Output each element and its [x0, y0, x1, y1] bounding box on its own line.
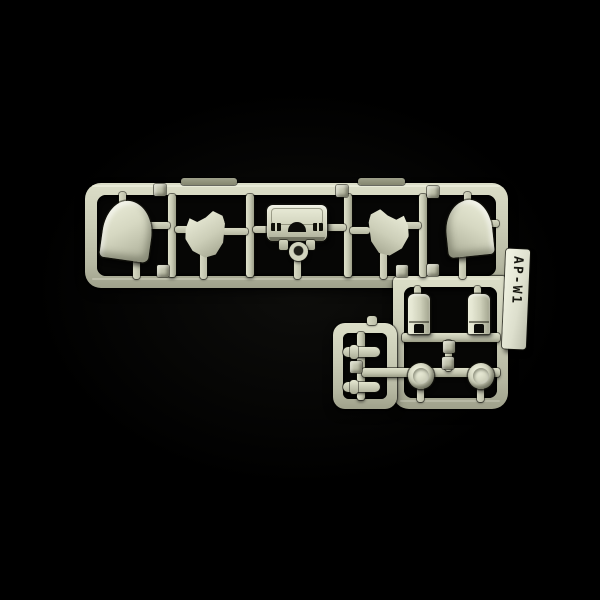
gate-stub	[367, 316, 377, 325]
sleeve-part-1	[408, 294, 430, 334]
notch-cutout	[414, 324, 424, 333]
side-slot	[271, 223, 281, 231]
bottom-shade	[269, 237, 325, 241]
rail-ridge	[358, 178, 405, 185]
dome-part-1	[408, 363, 434, 389]
part-number-tab	[154, 184, 166, 196]
photo-canvas: AP-W1	[0, 0, 600, 600]
seam-line	[409, 321, 429, 323]
gate-stem	[325, 224, 346, 231]
gate-stem	[222, 228, 248, 235]
part-number-tab	[336, 185, 348, 197]
sub-frame-rail	[333, 323, 397, 409]
core-box-foot	[279, 240, 288, 250]
divider-rail-3	[344, 194, 352, 277]
runner-label-tag: AP-W1	[502, 249, 530, 350]
notch-cutout	[474, 324, 484, 333]
peg-part-1	[343, 347, 380, 357]
part-number-tab	[427, 264, 439, 276]
part-number-tab	[427, 186, 439, 198]
part-number-tab	[157, 265, 169, 277]
gate-stem	[380, 251, 387, 279]
rail-highlight	[400, 400, 500, 402]
gate-stem	[350, 227, 370, 234]
peg-part-2	[343, 382, 380, 392]
part-number-tab	[396, 265, 408, 277]
part-number-tab	[442, 357, 454, 369]
dome-part-2	[468, 363, 494, 389]
ring-part	[289, 242, 308, 261]
runner-label-text: AP-W1	[508, 256, 525, 306]
seam-line	[469, 321, 489, 323]
sprue-runner: AP-W1	[0, 0, 600, 600]
divider-rail-1	[168, 194, 176, 277]
part-number-tab	[350, 361, 362, 373]
side-slot	[313, 223, 323, 231]
part-number-tab	[443, 341, 455, 353]
divider-rail-2	[246, 194, 254, 277]
sleeve-part-2	[468, 294, 490, 334]
core-box-part	[267, 205, 327, 241]
gate-stem	[294, 258, 301, 279]
rail-ridge	[181, 178, 237, 185]
divider-rail-4	[419, 194, 427, 277]
